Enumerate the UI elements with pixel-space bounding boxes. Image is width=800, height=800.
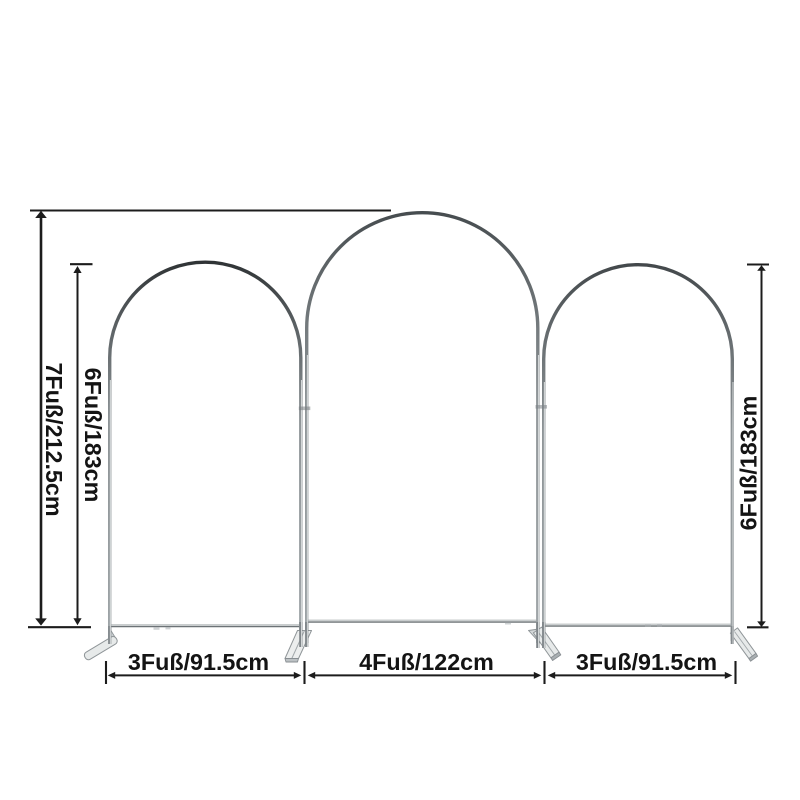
svg-text:4Fuß/122cm: 4Fuß/122cm — [359, 649, 494, 675]
svg-text:7Fuß/212.5cm: 7Fuß/212.5cm — [41, 362, 67, 516]
svg-text:3Fuß/91.5cm: 3Fuß/91.5cm — [576, 649, 717, 675]
svg-text:3Fuß/91.5cm: 3Fuß/91.5cm — [128, 649, 269, 675]
svg-text:6Fuß/183cm: 6Fuß/183cm — [80, 368, 106, 503]
svg-text:6Fuß/183cm: 6Fuß/183cm — [736, 396, 762, 531]
